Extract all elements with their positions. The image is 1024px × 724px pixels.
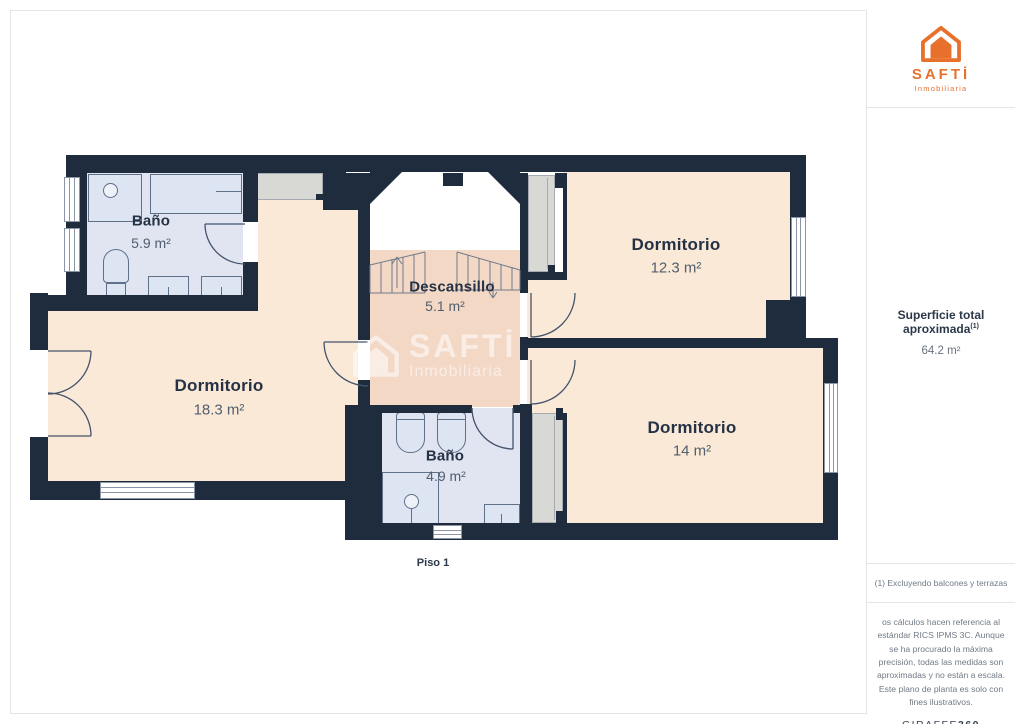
door-arc [48,393,91,436]
brand-tagline: Inmobiliaria [915,84,968,93]
room-area: 14 m² [673,443,711,460]
room-area: 18.3 m² [194,402,245,419]
door-arc [531,293,575,337]
disclaimer-section: os cálculos hacen referencia al estándar… [867,602,1015,714]
door-arc [205,224,245,264]
floor-label: Piso 1 [417,557,449,569]
room-area: 5.9 m² [131,235,171,251]
room-area: 5.1 m² [425,298,465,314]
total-area-section: Superficie total aproximada(1) 64.2 m² [867,108,1015,563]
stairwell-chamfer [488,172,520,204]
room-label: Baño [426,448,464,465]
provider-logo: GIRAFFE360 [876,719,1006,724]
door-arc [531,360,575,404]
door-arc [48,351,91,394]
brand-logo: SAFTİ Inmobiliaria [867,10,1015,108]
brand-name: SAFTİ [912,66,970,83]
watermark: SAFTİ Inmobiliaria [352,330,516,381]
total-area-value: 64.2 m² [867,345,1015,357]
watermark-brand: SAFTİ [409,330,516,362]
house-icon [352,334,400,378]
house-icon [920,25,962,63]
room-area: 12.3 m² [651,260,702,277]
door-arc [472,408,513,449]
footnote-marker: (1) [970,323,979,330]
floor-plan-page: Baño 5.9 m² Dormitorio 12.3 m² Descansil… [0,0,1024,724]
room-label: Dormitorio [175,376,264,396]
room-area: 4.9 m² [426,468,466,484]
footnote-section: (1) Excluyendo balcones y terrazas [867,563,1015,602]
room-label: Descansillo [409,279,495,296]
watermark-tagline: Inmobiliaria [409,362,516,381]
stairwell-chamfer [370,172,402,204]
room-label: Baño [132,213,170,230]
disclaimer-text: os cálculos hacen referencia al estándar… [876,616,1006,709]
sidebar: SAFTİ Inmobiliaria Superficie total apro… [866,10,1015,714]
total-area-label: Superficie total aproximada(1) [867,308,1015,336]
footnote-text: (1) Excluyendo balcones y terrazas [875,578,1008,588]
room-label: Dormitorio [632,235,721,255]
room-label: Dormitorio [648,418,737,438]
